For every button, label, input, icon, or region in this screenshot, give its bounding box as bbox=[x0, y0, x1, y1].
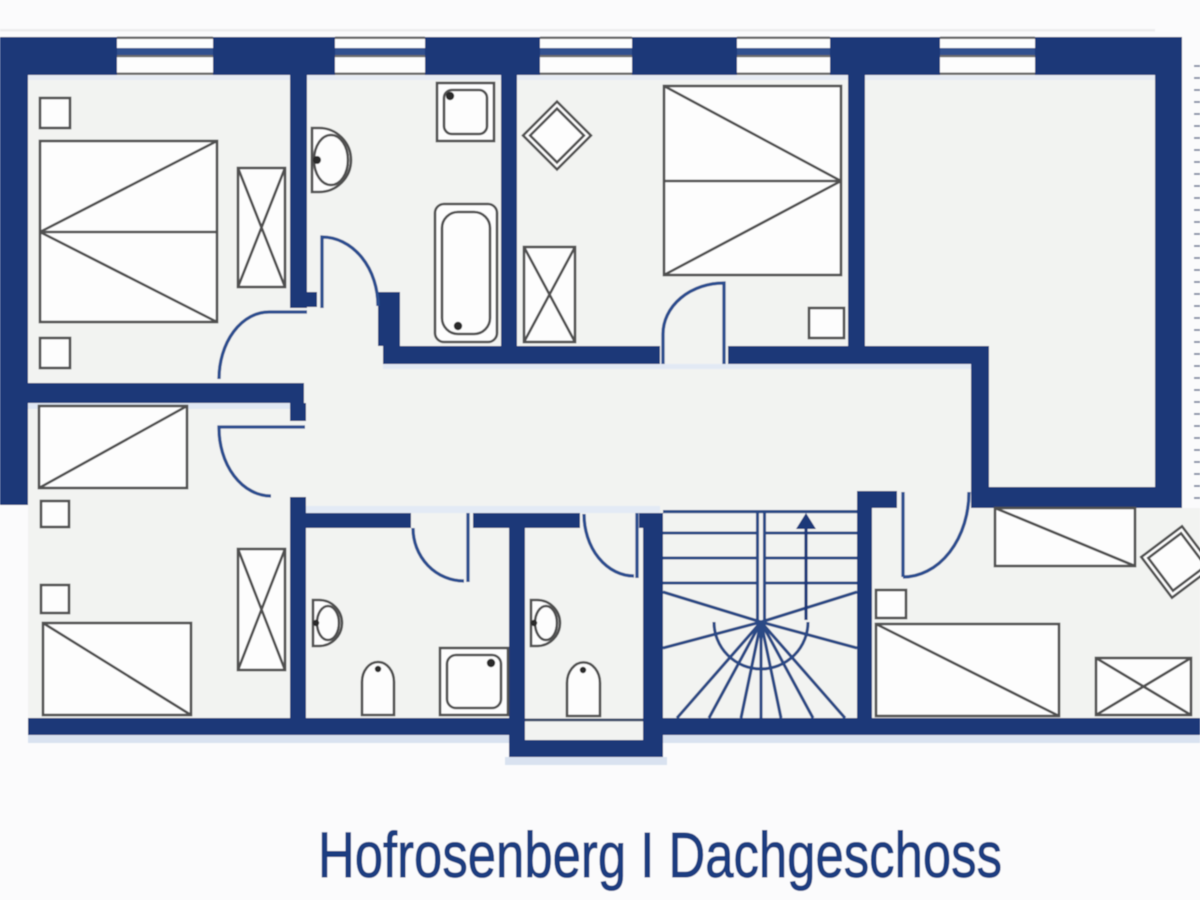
svg-text:Hofrosenberg I Dachgeschoss: Hofrosenberg I Dachgeschoss bbox=[318, 819, 1002, 891]
